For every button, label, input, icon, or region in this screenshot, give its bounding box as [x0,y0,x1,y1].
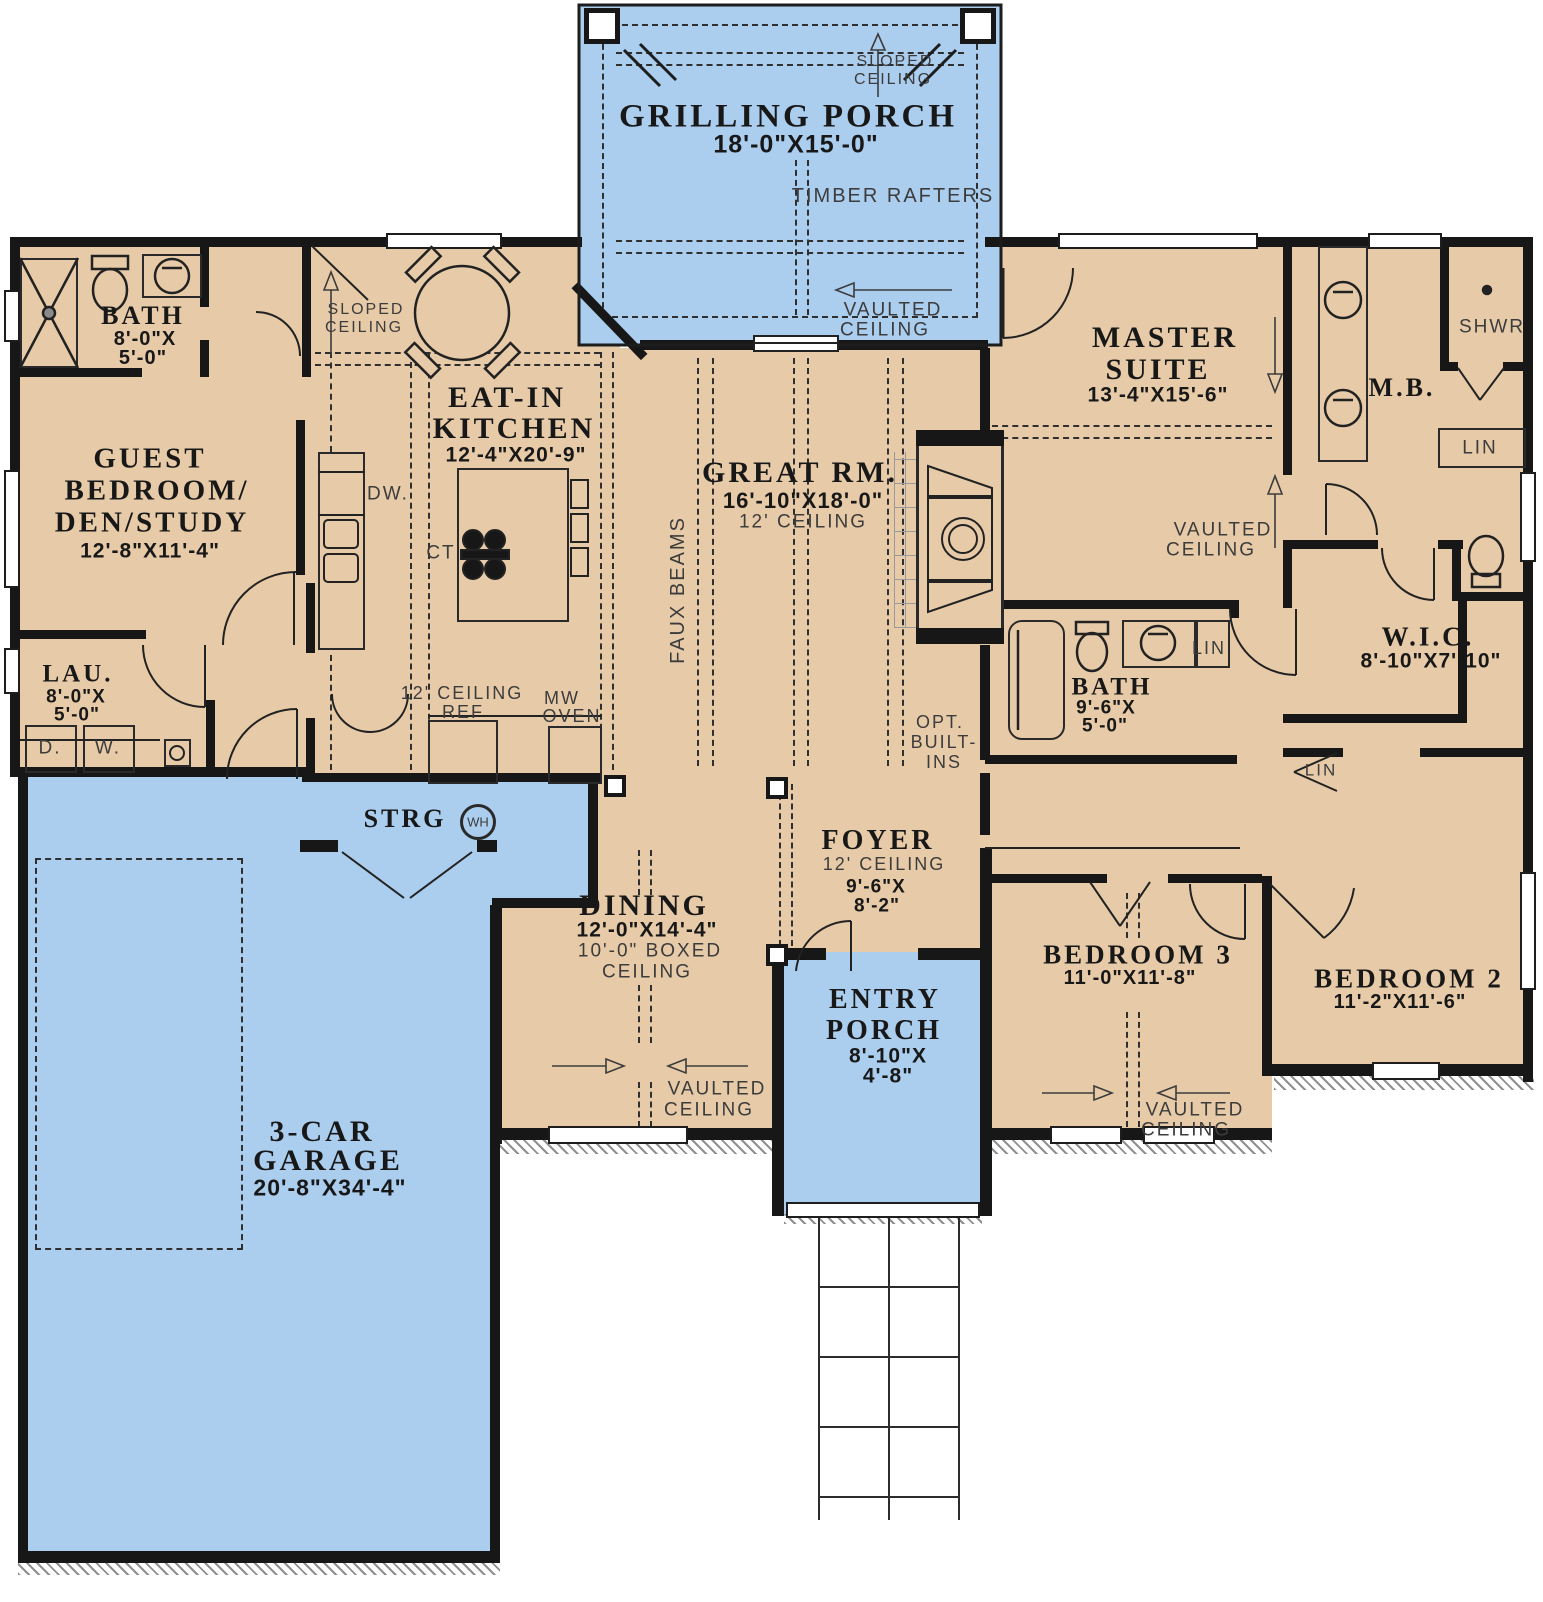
porch-slider-door [754,336,838,351]
laundry-label: LAU. [42,662,113,687]
master-suite-label: MASTER [1092,323,1238,353]
kitchen-ceiling-note: 12' CEILING [401,684,523,702]
bath2-dims: 5'-0" [1082,717,1128,736]
foyer-dims: 9'-6"X [846,878,906,897]
linen-label: LIN [1305,762,1337,779]
bedroom2-label: BEDROOM 2 [1314,966,1504,993]
floor-plan: GRILLING PORCH 18'-0"X15'-0" SLOPED CEIL… [0,0,1543,1602]
microwave-label: OVEN [542,707,601,725]
linen-label: LIN [1462,439,1498,458]
vaulted-ceiling-note: VAULTED [844,301,943,320]
vaulted-ceiling-note: CEILING [840,321,930,340]
bath2-label: BATH [1072,675,1153,700]
laundry-dims: 5'-0" [54,706,100,725]
fireplace-detail [928,466,992,612]
cooktop-label: CT [426,544,455,563]
master-suite-label: SUITE [1105,355,1210,385]
master-bath-label: M.B. [1369,375,1436,401]
bath1-dims: 5'-0" [119,348,167,368]
faux-beams-note: FAUX BEAMS [668,516,688,664]
dining-dims: 12'-0"X14'-4" [577,920,718,941]
shower-label: SHWR [1459,318,1525,337]
vaulted-ceiling-note: VAULTED [1146,1101,1245,1120]
great-room-label: GREAT RM. [702,458,898,488]
plan-linework [0,0,1543,1602]
dining-label: DINING [579,891,709,921]
garage-label: 3-CAR [270,1117,375,1147]
sloped-ceiling-note: CEILING [325,320,403,336]
dining-ceiling-note: 10'-0" BOXED [578,942,722,961]
vaulted-ceiling-note: VAULTED [1174,521,1273,540]
storage-label: STRG [364,806,447,832]
sloped-ceiling-note: CEILING [854,72,932,88]
refrigerator-label: REF [442,703,484,721]
kitchen-dims: 12'-4"X20'-9" [446,445,587,466]
entry-porch-dims: 8'-10"X [849,1046,927,1067]
vaulted-ceiling-note: CEILING [664,1101,754,1120]
dryer-label: D. [39,739,62,758]
great-room-ceiling-note: 12' CEILING [739,513,867,532]
water-heater-label: WH [467,816,489,829]
guest-bedroom-dims: 12'-8"X11'-4" [80,541,220,562]
opt-builtins-note: BUILT- [911,733,978,751]
entry-porch-label: ENTRY [829,986,941,1014]
sloped-ceiling-note: SLOPED [857,54,934,70]
kitchen-label: EAT-IN [448,383,566,413]
vaulted-ceiling-note: CEILING [1166,541,1256,560]
timber-rafters-note: TIMBER RAFTERS [792,186,994,206]
grilling-porch-dims: 18'-0"X15'-0" [713,133,878,158]
opt-builtins-note: OPT. [916,713,964,731]
foyer-dims: 8'-2" [854,897,900,916]
guest-bedroom-label: GUEST [93,445,206,474]
sloped-ceiling-note: SLOPED [328,302,405,318]
bedroom3-dims: 11'-0"X11'-8" [1064,968,1197,988]
bedroom2-dims: 11'-2"X11'-6" [1334,992,1467,1012]
grilling-porch-label: GRILLING PORCH [619,101,957,134]
master-suite-dims: 13'-4"X15'-6" [1088,385,1229,406]
linen-label: LIN [1192,639,1226,657]
great-room-dims: 16'-10"X18'-0" [723,490,883,512]
opt-builtins-note: INS [926,753,962,771]
wic-dims: 8'-10"X7'-10" [1361,651,1502,672]
washer-label: W. [95,739,121,758]
garage-label: GARAGE [253,1146,403,1176]
guest-bedroom-label: DEN/STUDY [55,509,250,538]
vaulted-ceiling-note: VAULTED [668,1080,767,1099]
entry-porch-label: PORCH [826,1017,942,1045]
dining-ceiling-note: CEILING [602,963,692,982]
foyer-ceiling-note: 12' CEILING [823,855,945,873]
foyer-label: FOYER [822,827,935,855]
vaulted-ceiling-note: CEILING [1141,1121,1231,1140]
bedroom3-label: BEDROOM 3 [1043,942,1233,969]
garage-dims: 20'-8"X34'-4" [253,1177,406,1200]
entry-porch-dims: 4'-8" [863,1066,913,1087]
bath1-dims: 8'-0"X [114,329,176,349]
kitchen-label: KITCHEN [433,414,596,444]
guest-bedroom-label: BEDROOM/ [64,477,249,506]
dishwasher-label: DW. [367,485,409,504]
porch-boundary [579,5,1001,345]
microwave-label: MW [544,689,580,707]
bath1-label: BATH [101,303,185,329]
breakfast-table [405,247,519,378]
wic-label: W.I.C. [1382,624,1475,651]
entry-walk [819,1218,959,1520]
